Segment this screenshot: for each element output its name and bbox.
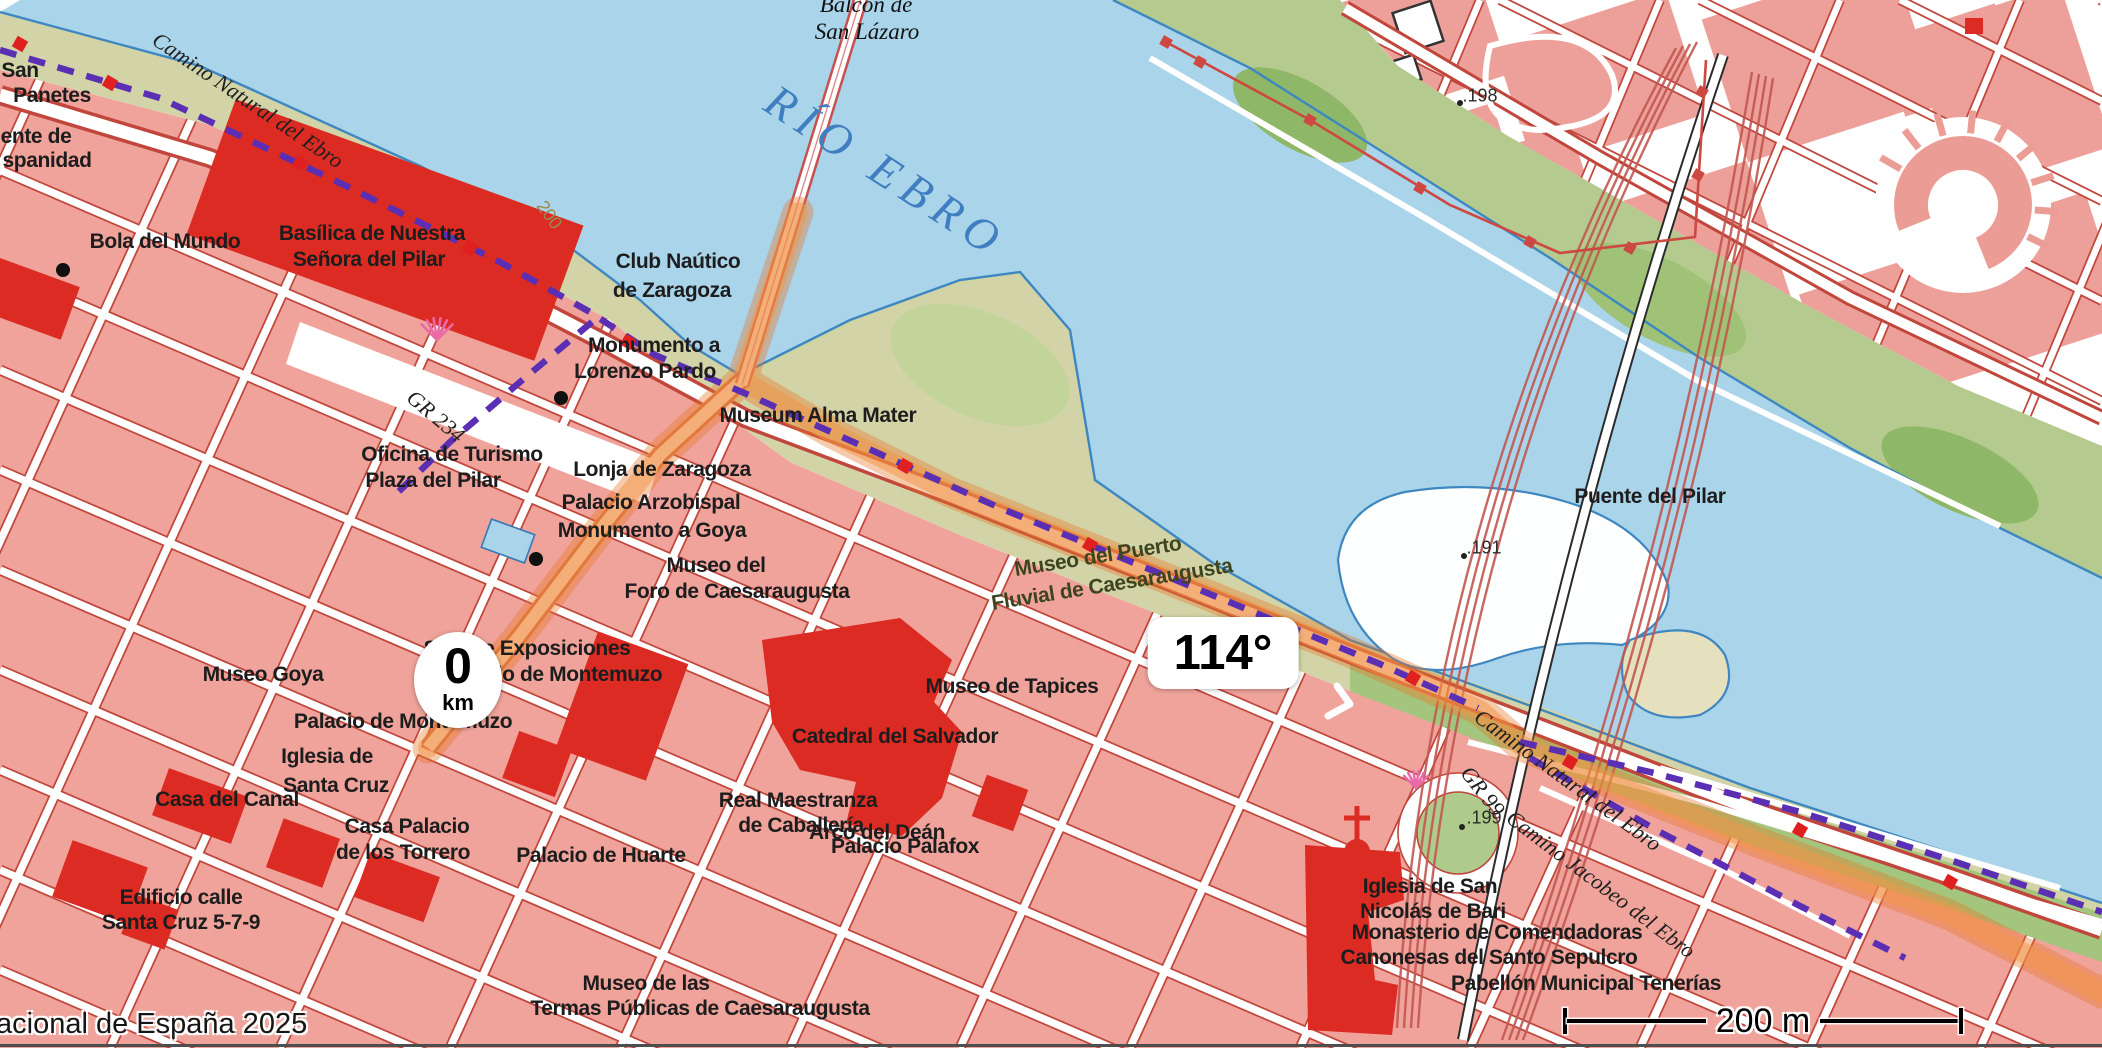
km-value: 0 [444, 644, 472, 689]
scale-tick-right [1959, 1008, 1963, 1034]
scale-label: 200 m [1716, 1002, 1811, 1041]
scale-bar: 200 m [1563, 1006, 1963, 1036]
map-base-layer [0, 0, 2102, 1048]
km-unit: km [442, 690, 474, 716]
route-start-marker[interactable]: 0 km [414, 632, 502, 728]
bottom-divider [0, 1044, 2102, 1047]
sand-island [1622, 630, 1729, 717]
scale-line [1820, 1019, 1959, 1023]
scale-line [1567, 1019, 1706, 1023]
map-attribution: acional de España 2025 [0, 1008, 307, 1041]
heading-marker[interactable]: 114° [1148, 617, 1299, 689]
map-canvas[interactable]: SanPanetesente despanidadBola del MundoB… [0, 0, 2102, 1048]
